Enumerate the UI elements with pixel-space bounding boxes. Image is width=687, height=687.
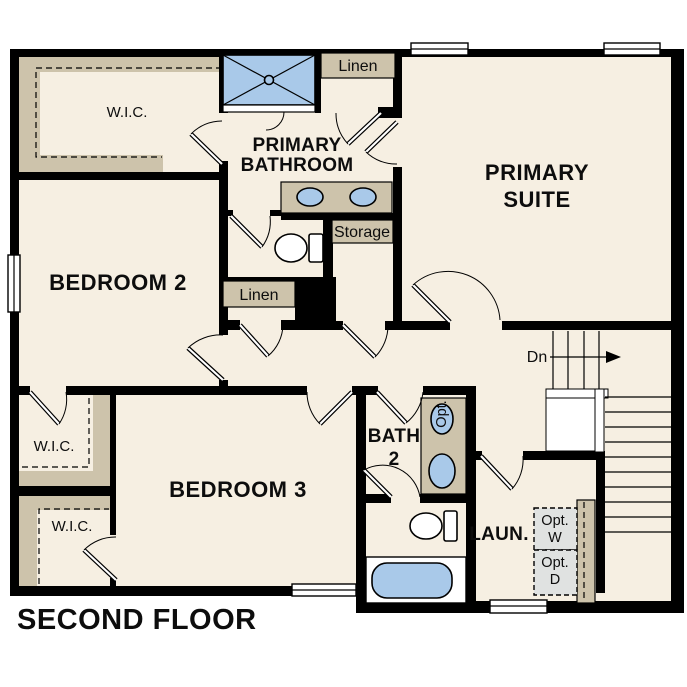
sink-primary-left bbox=[297, 188, 323, 206]
sink-bath2 bbox=[429, 454, 455, 488]
label-dryer-2: D bbox=[550, 572, 560, 588]
label-linen-upper: Linen bbox=[338, 58, 377, 75]
bathtub bbox=[366, 557, 466, 603]
label-optional-sink: Opt. bbox=[434, 400, 450, 427]
label-bath2-1: BATH bbox=[368, 426, 421, 447]
label-wic-mid: W.I.C. bbox=[34, 438, 75, 455]
label-bedroom2: BEDROOM 2 bbox=[49, 270, 187, 295]
floorplan-drawing: W.I.C. PRIMARY BATHROOM Linen PRIMARY SU… bbox=[0, 0, 687, 687]
shower-drain bbox=[265, 76, 274, 85]
label-stairs-down: Dn bbox=[527, 349, 547, 366]
label-bedroom3: BEDROOM 3 bbox=[169, 477, 307, 502]
label-laundry: LAUN. bbox=[469, 524, 529, 545]
label-wic-primary: W.I.C. bbox=[107, 104, 148, 121]
stair-railing-side bbox=[595, 389, 604, 452]
floorplan-canvas: W.I.C. PRIMARY BATHROOM Linen PRIMARY SU… bbox=[0, 0, 687, 687]
page-title: SECOND FLOOR bbox=[17, 604, 257, 636]
window-suite-left bbox=[411, 43, 468, 55]
window-bedroom3 bbox=[292, 584, 356, 596]
stair-landing bbox=[546, 398, 595, 451]
sink-primary-right bbox=[350, 188, 376, 206]
label-primary-suite-1: PRIMARY bbox=[485, 160, 589, 185]
label-primary-suite-2: SUITE bbox=[503, 187, 570, 212]
window-suite-right bbox=[604, 43, 660, 55]
shower-glass-door bbox=[223, 105, 315, 112]
toilet-primary bbox=[275, 234, 323, 262]
toilet-bath2 bbox=[410, 511, 457, 541]
label-washer-1: Opt. bbox=[541, 513, 568, 529]
label-washer-2: W bbox=[548, 530, 562, 546]
label-primary-bathroom-1: PRIMARY bbox=[252, 135, 341, 156]
label-primary-bathroom-2: BATHROOM bbox=[241, 155, 354, 176]
label-linen-hall: Linen bbox=[239, 287, 278, 304]
window-laundry bbox=[490, 600, 547, 613]
label-bath2-2: 2 bbox=[389, 449, 400, 470]
laundry-counter bbox=[577, 500, 595, 603]
label-dryer-1: Opt. bbox=[541, 555, 568, 571]
label-storage: Storage bbox=[334, 224, 390, 241]
window-bedroom2 bbox=[8, 255, 20, 312]
label-wic-lower: W.I.C. bbox=[52, 518, 93, 535]
